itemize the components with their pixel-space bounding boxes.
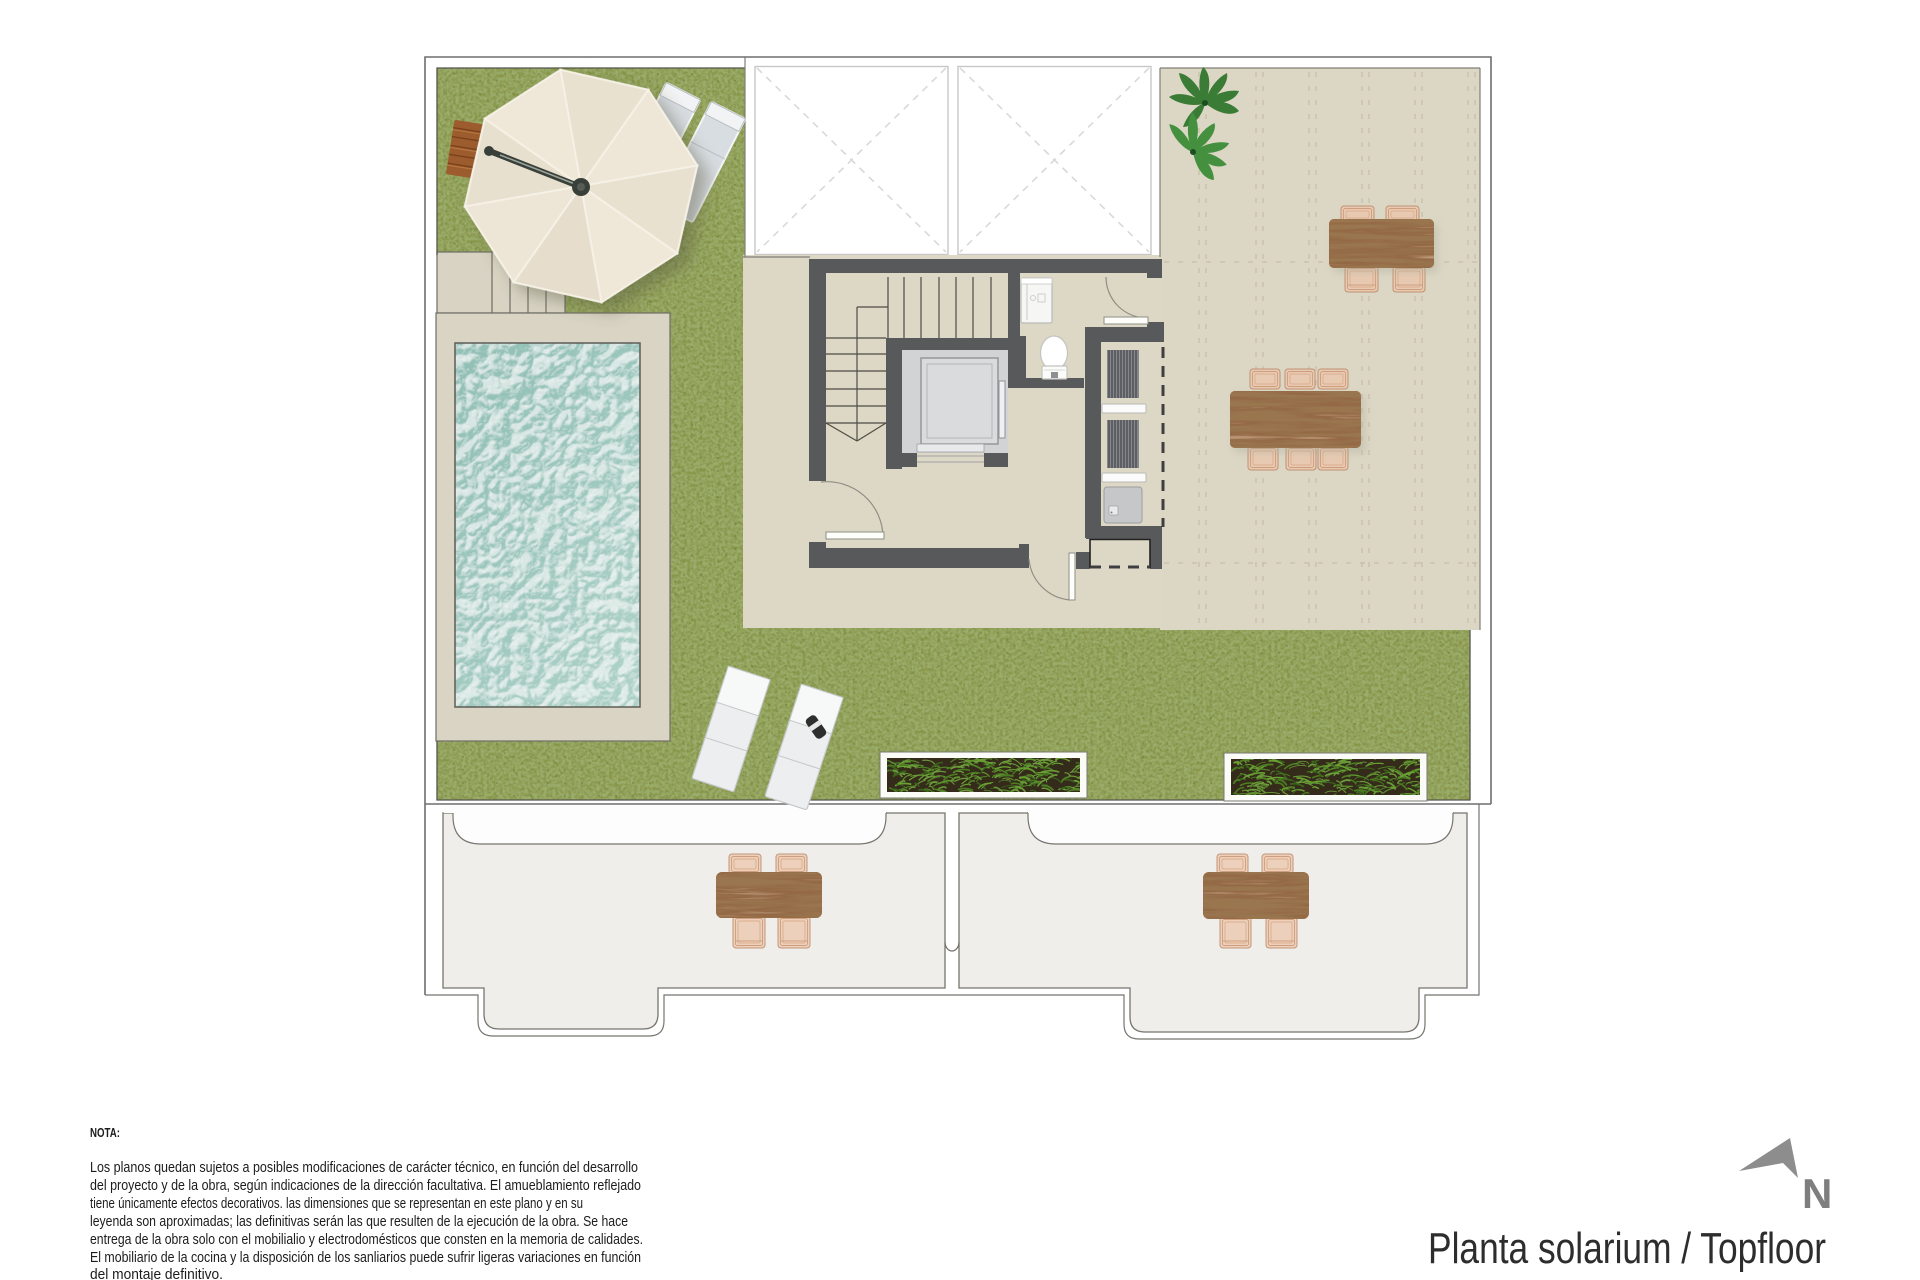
svg-text:del proyecto y de la obra, seg: del proyecto y de la obra, según indicac…	[90, 1177, 641, 1194]
svg-text:tiene únicamente efectos decor: tiene únicamente efectos decorativos. la…	[90, 1195, 583, 1212]
svg-text:Planta solarium / Topfloor: Planta solarium / Topfloor	[1428, 1224, 1826, 1273]
svg-text:N: N	[1802, 1170, 1832, 1217]
svg-text:entrega de la obra solo con el: entrega de la obra solo con el mobiliali…	[90, 1231, 643, 1248]
svg-text:NOTA:: NOTA:	[90, 1126, 120, 1140]
svg-text:del montaje definitivo.: del montaje definitivo.	[90, 1266, 223, 1280]
svg-text:El mobiliario de la cocina y l: El mobiliario de la cocina y la disposic…	[90, 1249, 641, 1266]
svg-text:leyenda son aproximadas; las d: leyenda son aproximadas; las definitivas…	[90, 1213, 628, 1230]
svg-text:Los planos quedan sujetos a po: Los planos quedan sujetos a posibles mod…	[90, 1159, 638, 1176]
